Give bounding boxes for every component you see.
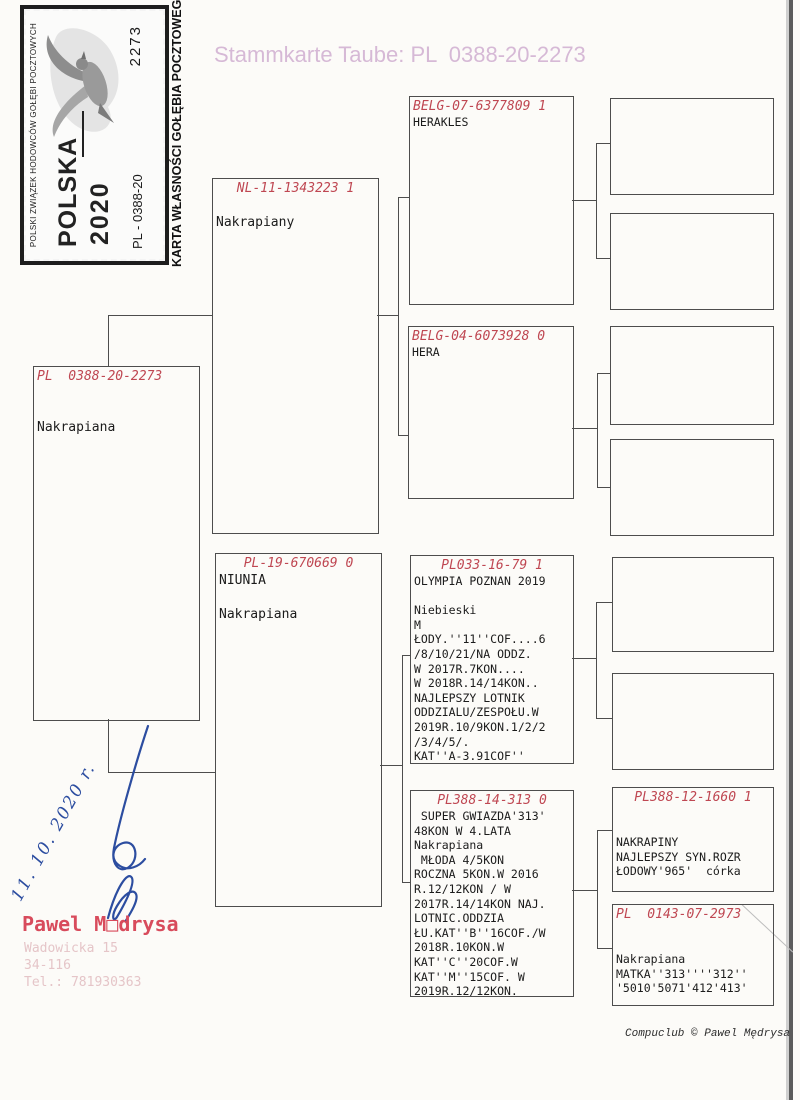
- connector: [597, 487, 610, 488]
- pedigree-box-mother: PL-19-670669 0 NIUNIA Nakrapiana: [215, 553, 382, 907]
- connector: [377, 315, 398, 316]
- connector: [402, 882, 410, 883]
- handwritten-signature: [78, 722, 188, 922]
- stamp-country: POLSKA: [54, 137, 83, 247]
- connector: [402, 655, 403, 882]
- stamp-year: 2020: [86, 181, 115, 245]
- page-title: Stammkarte Taube: PL 0388-20-2273: [214, 42, 586, 68]
- pedigree-box-grandfather-maternal: PL033-16-79 1 OLYMPIA POZNAN 2019 Niebie…: [410, 555, 574, 764]
- connector: [596, 143, 597, 258]
- pigeon-details: OLYMPIA POZNAN 2019 Niebieski M ŁODY.''1…: [411, 574, 573, 764]
- pedigree-box-empty-5: [612, 557, 774, 652]
- owner-phone: Tel.: 781930363: [24, 975, 141, 990]
- connector: [596, 718, 612, 719]
- pedigree-box-empty-2: [610, 213, 774, 310]
- pigeon-details: HERA: [409, 345, 573, 360]
- pigeon-details: Nakrapiany: [213, 197, 378, 231]
- pedigree-box-empty-1: [610, 98, 774, 195]
- pigeon-details: NAKRAPINY NAJLEPSZY SYN.ROZR ŁODOWY'965'…: [613, 806, 773, 879]
- owner-street: Wadowicka 15: [24, 941, 118, 956]
- pedigree-box-subject: PL 0388-20-2273 Nakrapiana: [33, 366, 200, 721]
- ring-number: PL388-14-313 0: [411, 791, 573, 809]
- owner-name: Pawel M□drysa: [22, 912, 179, 936]
- pedigree-box-empty-3: [610, 326, 774, 425]
- pigeon-details: NIUNIA Nakrapiana: [216, 572, 381, 623]
- connector: [380, 765, 402, 766]
- connector: [108, 315, 212, 316]
- pigeon-photo-icon: [38, 17, 130, 147]
- connector: [596, 602, 612, 603]
- connector: [572, 890, 597, 891]
- connector: [572, 200, 596, 201]
- ring-number: PL 0143-07-2973: [613, 905, 773, 923]
- connector: [597, 830, 598, 948]
- association-name: POLSKI ZWIĄZEK HODOWCÓW GOŁĘBI POCZTOWYC…: [29, 11, 38, 259]
- connector: [398, 435, 408, 436]
- stamp-ring-prefix: PL - 0388-20: [130, 174, 145, 249]
- pedigree-card-scan: { "title": "Stammkarte Taube: PL 0388-20…: [0, 0, 800, 1100]
- pigeon-details: Nakrapiana MATKA''313''''312'' '5010'507…: [613, 923, 773, 996]
- pedigree-box-father: NL-11-1343223 1 Nakrapiany: [212, 178, 379, 534]
- ring-number: NL-11-1343223 1: [213, 179, 378, 197]
- pedigree-box-greatgrandmother: PL 0143-07-2973 Nakrapiana MATKA''313'''…: [612, 904, 774, 1006]
- connector: [398, 197, 409, 198]
- connector: [108, 315, 109, 366]
- ring-number: PL 0388-20-2273: [34, 367, 199, 385]
- ring-number: PL033-16-79 1: [411, 556, 573, 574]
- pedigree-box-grandmother-maternal: PL388-14-313 0 SUPER GWIAZDA'313' 48KON …: [410, 790, 574, 997]
- stamp-frame: POLSKI ZWIĄZEK HODOWCÓW GOŁĘBI POCZTOWYC…: [20, 5, 169, 265]
- stamp-divider-line: [82, 111, 84, 157]
- ring-number: PL388-12-1660 1: [613, 788, 773, 806]
- pedigree-box-empty-4: [610, 439, 774, 536]
- owner-postal-code: 34-116: [24, 958, 71, 973]
- connector: [596, 143, 610, 144]
- pigeon-details: HERAKLES: [410, 115, 573, 130]
- connector: [596, 258, 610, 259]
- pigeon-details: Nakrapiana: [34, 385, 199, 436]
- connector: [572, 658, 596, 659]
- pedigree-box-grandfather-paternal: BELG-07-6377809 1 HERAKLES: [409, 96, 574, 305]
- connector: [597, 948, 612, 949]
- pedigree-box-greatgrandfather: PL388-12-1660 1 NAKRAPINY NAJLEPSZY SYN.…: [612, 787, 774, 892]
- connector: [597, 373, 598, 487]
- software-credit: Compuclub © Pawel Mędrysa: [625, 1028, 790, 1040]
- pigeon-details: SUPER GWIAZDA'313' 48KON W 4.LATA Nakrap…: [411, 809, 573, 999]
- connector: [572, 428, 597, 429]
- connector: [597, 830, 612, 831]
- ownership-stamp: POLSKI ZWIĄZEK HODOWCÓW GOŁĘBI POCZTOWYC…: [20, 2, 195, 267]
- connector: [596, 602, 597, 718]
- connector: [402, 655, 410, 656]
- stamp-rotated-content: POLSKI ZWIĄZEK HODOWCÓW GOŁĘBI POCZTOWYC…: [20, 2, 195, 267]
- stamp-perforation: POLSKI ZWIĄZEK HODOWCÓW GOŁĘBI POCZTOWYC…: [24, 9, 165, 261]
- pedigree-box-empty-6: [612, 673, 774, 770]
- pedigree-box-grandmother-paternal: BELG-04-6073928 0 HERA: [408, 326, 574, 499]
- connector: [398, 197, 399, 435]
- ring-number: PL-19-670669 0: [216, 554, 381, 572]
- card-type-caption: KARTA WŁASNOŚCI GOŁĘBIA POCZTOWEGO: [170, 2, 184, 267]
- connector: [597, 373, 610, 374]
- scan-edge-line: [789, 0, 793, 1100]
- ring-number: BELG-07-6377809 1: [410, 97, 573, 115]
- ring-number: BELG-04-6073928 0: [409, 327, 573, 345]
- stamp-ring-number: 2273: [127, 25, 144, 66]
